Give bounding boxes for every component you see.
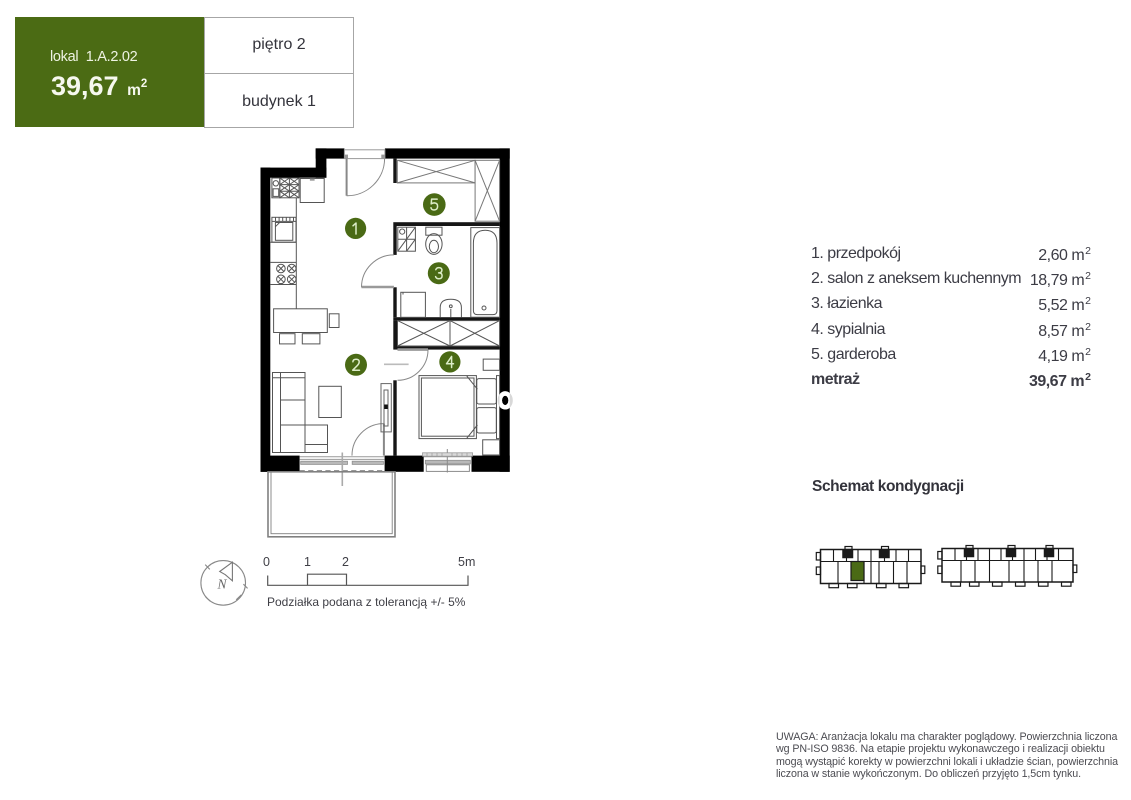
svg-text:N: N [217, 577, 228, 592]
